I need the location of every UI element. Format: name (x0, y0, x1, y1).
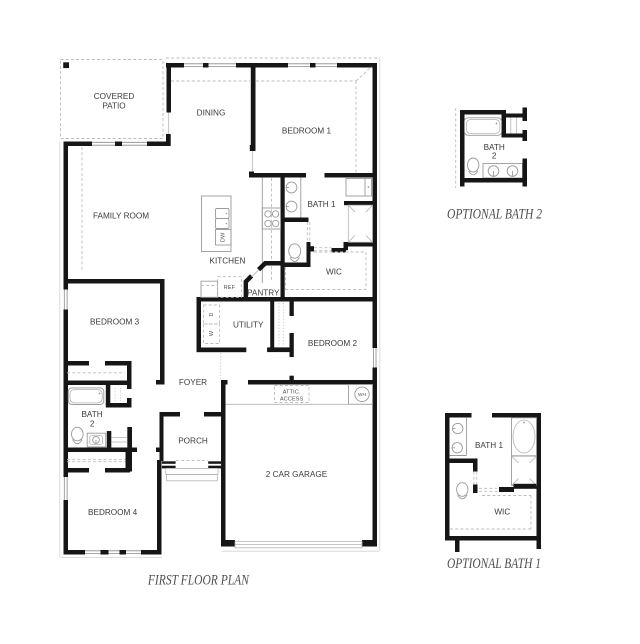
svg-text:2: 2 (90, 419, 95, 428)
svg-text:ATTIC.: ATTIC. (283, 390, 301, 396)
svg-text:OPTIONAL BATH 2: OPTIONAL BATH 2 (447, 207, 542, 223)
svg-text:DINING: DINING (197, 109, 226, 118)
svg-text:COVERED: COVERED (94, 92, 135, 101)
svg-text:FAMILY ROOM: FAMILY ROOM (93, 211, 149, 220)
svg-text:D: D (209, 312, 215, 316)
svg-text:REF: REF (224, 285, 236, 291)
svg-text:PORCH: PORCH (178, 437, 208, 446)
svg-text:2: 2 (492, 152, 497, 161)
svg-text:WIC: WIC (326, 267, 342, 276)
svg-text:2 CAR GARAGE: 2 CAR GARAGE (266, 470, 328, 479)
svg-text:UTILITY: UTILITY (233, 320, 264, 329)
svg-text:FOYER: FOYER (179, 378, 207, 387)
svg-text:DW: DW (221, 232, 227, 242)
svg-text:BATH: BATH (81, 410, 102, 419)
svg-text:WIC: WIC (494, 507, 510, 516)
svg-text:KITCHEN: KITCHEN (210, 256, 246, 265)
svg-text:BEDROOM 3: BEDROOM 3 (90, 318, 140, 327)
svg-text:W: W (209, 330, 215, 336)
svg-text:BATH 1: BATH 1 (307, 200, 336, 209)
svg-text:PANTRY: PANTRY (247, 288, 280, 297)
svg-text:PATIO: PATIO (102, 102, 125, 111)
svg-text:BEDROOM 1: BEDROOM 1 (282, 127, 332, 136)
svg-text:OPTIONAL BATH 1: OPTIONAL BATH 1 (447, 556, 541, 572)
svg-text:WH: WH (358, 392, 366, 397)
svg-text:ACCESS: ACCESS (280, 397, 304, 403)
svg-text:FIRST FLOOR PLAN: FIRST FLOOR PLAN (147, 573, 250, 589)
svg-text:BATH: BATH (484, 143, 505, 152)
svg-text:BATH 1: BATH 1 (475, 441, 504, 450)
svg-text:BEDROOM 2: BEDROOM 2 (308, 339, 358, 348)
svg-text:BEDROOM 4: BEDROOM 4 (88, 508, 138, 517)
